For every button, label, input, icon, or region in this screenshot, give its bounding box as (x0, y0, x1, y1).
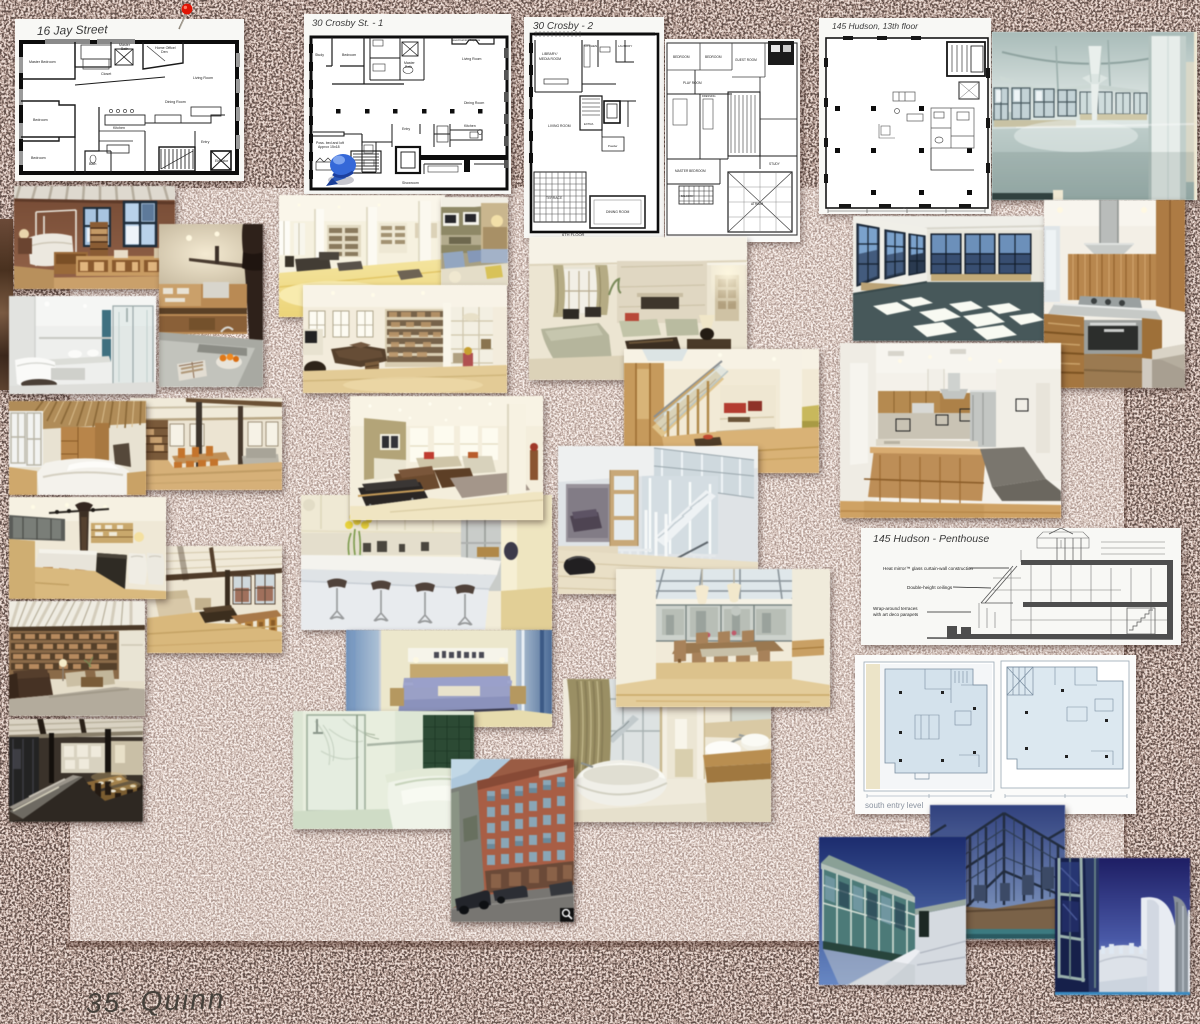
svg-text:EXTRA: EXTRA (584, 122, 593, 126)
svg-text:Bedroom: Bedroom (31, 156, 46, 160)
svg-text:145 Hudson - Penthouse: 145 Hudson - Penthouse (873, 533, 989, 545)
svg-text:Den: Den (161, 50, 168, 54)
svg-text:DINING ROOM: DINING ROOM (606, 210, 630, 214)
svg-text:BALCONY: BALCONY (681, 194, 694, 198)
svg-text:Kitchen: Kitchen (464, 124, 476, 128)
svg-text:Dining Room: Dining Room (464, 101, 484, 105)
svg-text:BEDROOM: BEDROOM (673, 55, 690, 59)
svg-text:Bath: Bath (121, 47, 128, 51)
svg-text:DRESSING: DRESSING (702, 94, 716, 98)
svg-text:Bedroom: Bedroom (33, 118, 48, 122)
svg-text:145 Hudson, 13th floor: 145 Hudson, 13th floor (832, 21, 919, 31)
svg-text:Study: Study (315, 53, 324, 57)
svg-text:GUEST ROOM: GUEST ROOM (735, 58, 757, 62)
svg-text:PLAY ROOM: PLAY ROOM (683, 81, 702, 85)
svg-text:BEDROOM: BEDROOM (705, 55, 722, 59)
svg-text:LIBRARY/: LIBRARY/ (542, 52, 557, 56)
svg-text:Heat mirror™ glass curtain-wal: Heat mirror™ glass curtain-wall construc… (883, 566, 974, 571)
svg-text:Powder: Powder (608, 144, 618, 148)
svg-text:Bedroom: Bedroom (342, 53, 356, 57)
svg-text:30 Crosby - 2: 30 Crosby - 2 (533, 21, 593, 32)
svg-text:LAUNDRY: LAUNDRY (618, 44, 632, 48)
svg-text:Living Room: Living Room (193, 76, 213, 80)
svg-text:Closet: Closet (101, 72, 111, 76)
svg-text:KITCHEN: KITCHEN (584, 44, 597, 48)
svg-text:Dining Room: Dining Room (165, 100, 186, 104)
svg-text:Wrap-around terraces: Wrap-around terraces (873, 606, 918, 611)
svg-text:ATRIUM: ATRIUM (751, 202, 763, 206)
svg-text:Elevator: Elevator (215, 159, 229, 163)
svg-text:Master Bedroom: Master Bedroom (29, 60, 56, 64)
svg-text:wood burning fireplace: wood burning fireplace (452, 38, 481, 42)
svg-text:south entry level: south entry level (865, 801, 923, 810)
svg-text:STUDY: STUDY (769, 162, 781, 166)
svg-text:Entry: Entry (402, 127, 410, 131)
svg-text:Bath: Bath (89, 162, 96, 166)
svg-text:Showroom: Showroom (402, 181, 419, 185)
svg-text:Double-height ceilings: Double-height ceilings (907, 585, 953, 590)
svg-text:TERRACE: TERRACE (546, 196, 563, 200)
svg-text:30 Crosby St. - 1: 30 Crosby St. - 1 (312, 18, 383, 29)
svg-text:Bath: Bath (405, 65, 412, 69)
svg-text:16 Jay Street: 16 Jay Street (37, 22, 109, 38)
svg-text:Kitchen: Kitchen (113, 126, 125, 130)
svg-text:with art deco parapets: with art deco parapets (873, 612, 919, 617)
svg-text:46': 46' (903, 206, 907, 210)
svg-text:Entry: Entry (201, 140, 210, 144)
svg-text:LIVING ROOM: LIVING ROOM (548, 124, 571, 128)
svg-text:MASTER BEDROOM: MASTER BEDROOM (675, 169, 706, 173)
svg-text:MEDIA ROOM: MEDIA ROOM (539, 57, 561, 61)
svg-text:Living Room: Living Room (462, 57, 482, 61)
